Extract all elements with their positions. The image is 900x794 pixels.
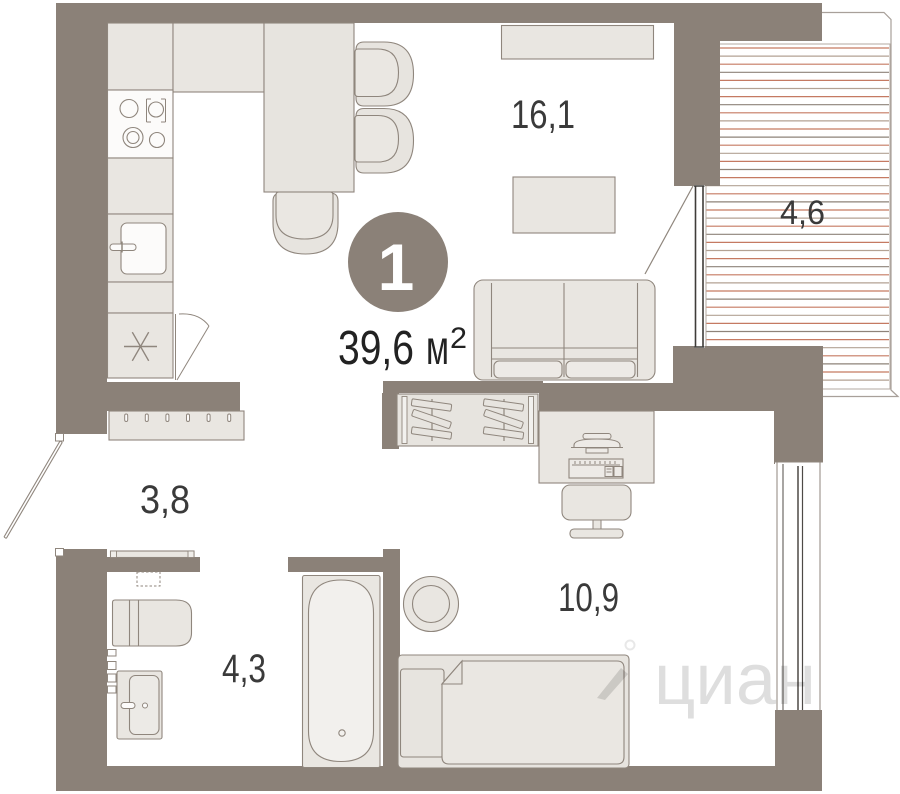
svg-text:16,1: 16,1: [511, 93, 575, 137]
svg-text:4,6: 4,6: [780, 194, 825, 232]
svg-text:1: 1: [378, 230, 415, 304]
svg-text:циан: циан: [654, 640, 816, 720]
svg-text:3,8: 3,8: [140, 478, 190, 522]
svg-text:10,9: 10,9: [558, 576, 619, 620]
svg-text:39,6: 39,6: [338, 322, 414, 375]
svg-text:4,3: 4,3: [222, 647, 266, 691]
svg-text:м: м: [426, 322, 449, 375]
svg-text:2: 2: [450, 322, 467, 355]
